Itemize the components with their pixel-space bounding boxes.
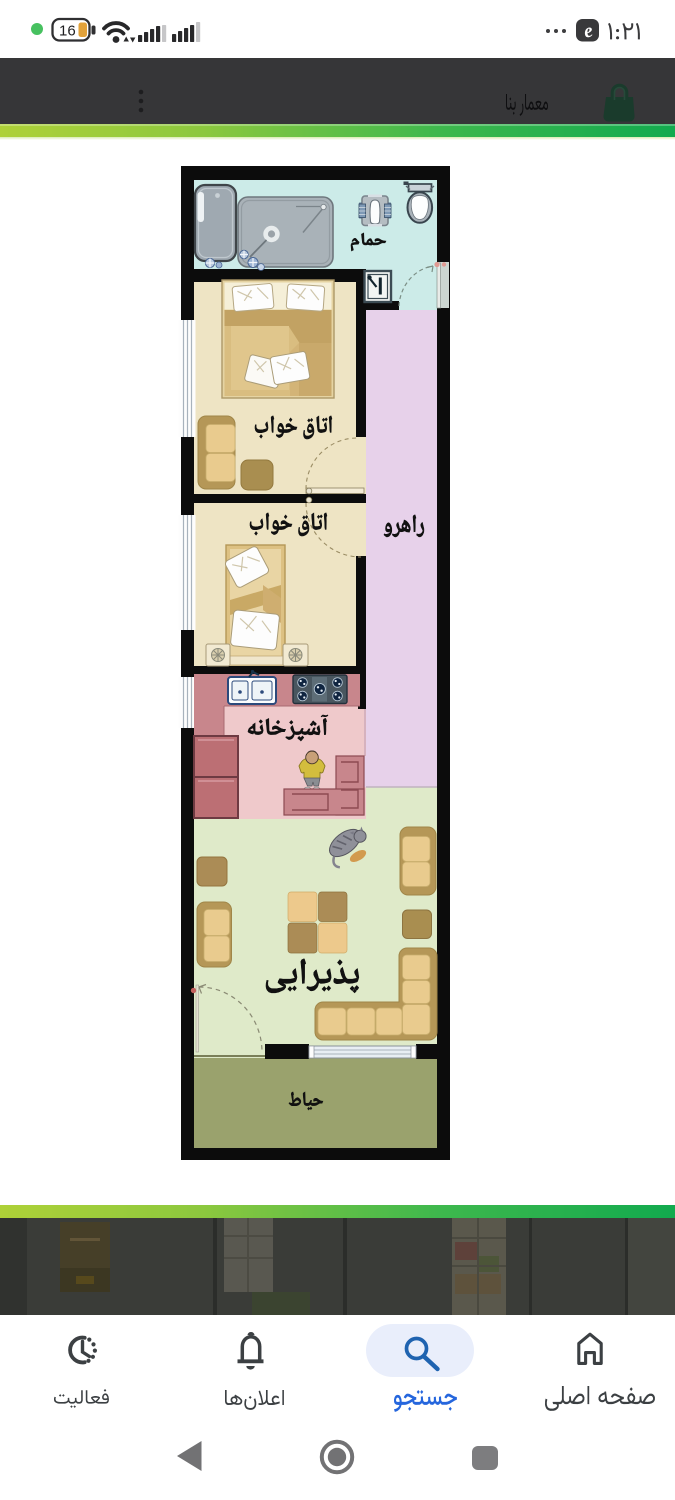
svg-text:16: 16 <box>59 23 76 40</box>
